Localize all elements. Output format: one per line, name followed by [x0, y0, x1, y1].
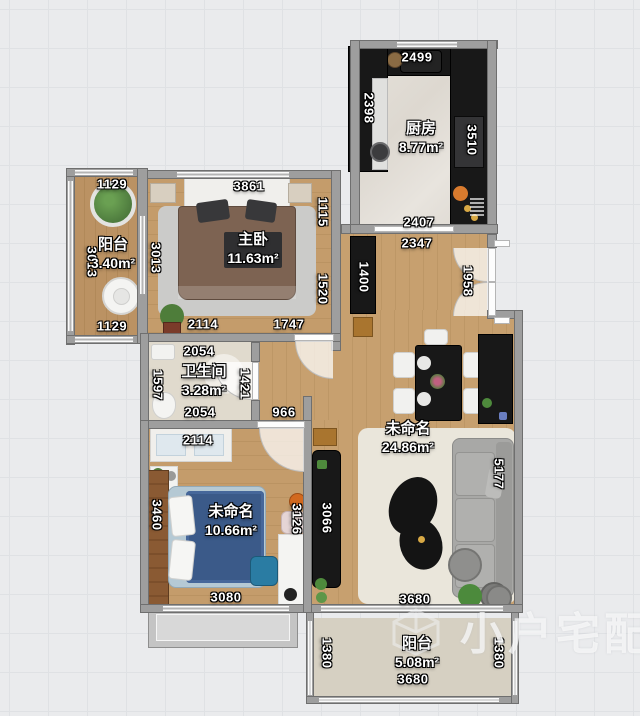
entry-jamb-top [494, 240, 510, 247]
balcony-b-window-s[interactable] [318, 697, 500, 703]
bathroom-door-leaf[interactable] [252, 362, 259, 400]
sofa-back [496, 442, 512, 594]
living-side-cabinet[interactable] [478, 334, 513, 424]
tv-plant-pot-1[interactable] [315, 578, 327, 590]
entry-door-leaf-2[interactable] [488, 282, 496, 316]
wall-kitchen-right[interactable] [487, 40, 497, 234]
kitchen-window[interactable] [396, 41, 458, 48]
balcony-left-window-n[interactable] [74, 169, 134, 176]
bedroom2-bench[interactable] [250, 556, 278, 586]
hall-wardrobe[interactable] [350, 236, 376, 314]
balcony-left-window-w[interactable] [67, 180, 74, 332]
master-bed-throw [224, 232, 282, 268]
bedroom2-floor-lamp[interactable] [284, 588, 297, 601]
master-bed-fold [178, 286, 296, 299]
wall-master-right[interactable] [331, 170, 341, 351]
wall-kitchen-left[interactable] [350, 40, 360, 234]
tv-cabinet[interactable] [312, 450, 341, 588]
balcony-divider-window[interactable] [139, 215, 146, 295]
dining-plate-1 [417, 356, 431, 370]
sofa-cushion-2 [455, 498, 495, 542]
master-door-leaf[interactable] [294, 334, 334, 341]
bedroom2-door-leaf[interactable] [257, 421, 305, 428]
kitchen-sliding-door[interactable] [374, 226, 454, 232]
kitchen-sink[interactable] [400, 50, 442, 73]
living-stool[interactable] [313, 428, 337, 446]
cabinet-plant [482, 398, 492, 408]
washing-machine[interactable] [370, 142, 390, 162]
wall-living-right[interactable] [514, 310, 523, 612]
hall-stool[interactable] [353, 317, 373, 337]
wall-bath-right-top[interactable] [251, 342, 260, 362]
bedroom2-window[interactable] [162, 605, 290, 612]
bay-window-glass [156, 614, 290, 641]
fridge[interactable] [454, 116, 484, 168]
master-nightstand-right[interactable] [288, 183, 312, 203]
entry-door-leaf-1[interactable] [488, 248, 496, 282]
balcony-b-window-w[interactable] [307, 620, 313, 696]
tv-plant-pot-2[interactable] [316, 592, 327, 603]
coffee-table-deco [418, 536, 425, 543]
bedroom2-pillow-2 [168, 539, 196, 581]
balcony-plant[interactable] [90, 181, 136, 227]
bedroom2-cabinet-door2 [194, 434, 224, 456]
toilet[interactable] [152, 392, 176, 419]
balcony-basin-inner [113, 288, 130, 305]
dining-chair-left-1[interactable] [393, 352, 415, 378]
kitchen-faucet[interactable] [387, 52, 403, 68]
bedroom2-wardrobe[interactable] [148, 470, 169, 610]
bedroom2-pillow-1 [168, 495, 196, 537]
kitchen-grill[interactable] [470, 198, 484, 216]
dining-plate-2 [417, 392, 431, 406]
bedroom2-cabinet-door1 [156, 434, 186, 456]
dining-chair-left-2[interactable] [393, 388, 415, 414]
watermark-text: 小户宅配 [460, 598, 640, 662]
entry-jamb-bottom [494, 317, 510, 324]
watermark-logo-icon [388, 606, 444, 658]
dining-flowers [430, 374, 445, 389]
wall-bedroom2-right[interactable] [303, 420, 312, 613]
wall-corner-patch[interactable] [341, 224, 351, 234]
tv-cabinet-plant [317, 460, 327, 469]
bathroom-sink[interactable] [151, 344, 175, 360]
master-pillow-right[interactable] [245, 199, 277, 223]
kitchen-bowl-orange[interactable] [453, 186, 468, 201]
cabinet-item [499, 412, 507, 420]
floorplan-canvas[interactable]: 2499239835102407234714001958112930131129… [0, 0, 640, 716]
wall-bedroom2-left[interactable] [140, 420, 149, 613]
master-window[interactable] [176, 171, 290, 178]
dining-chair-top[interactable] [424, 329, 448, 345]
balcony-left-window-s[interactable] [74, 336, 134, 343]
wall-bath-left[interactable] [140, 333, 149, 428]
master-nightstand-left[interactable] [150, 183, 176, 203]
side-table-round[interactable] [448, 548, 482, 582]
